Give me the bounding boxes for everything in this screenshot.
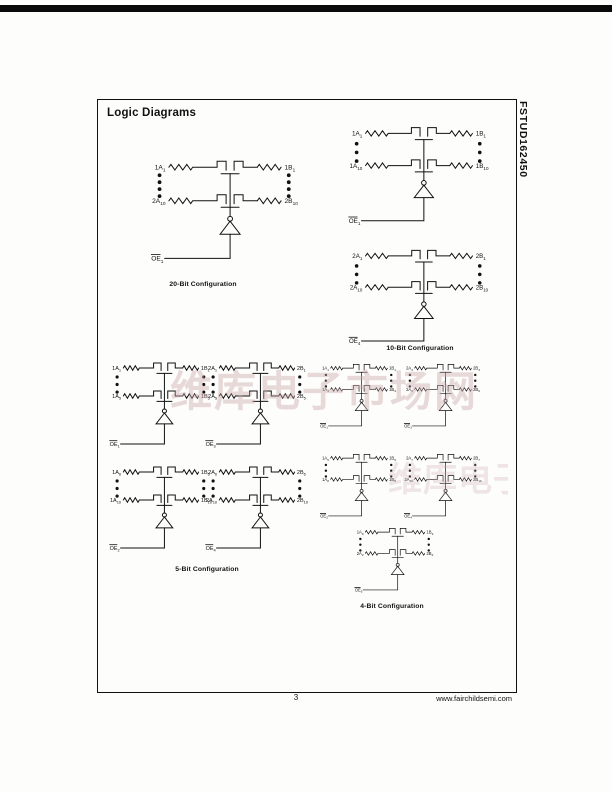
- pin-label: 2A10: [206, 498, 218, 505]
- resistor: [375, 478, 387, 482]
- pin-label: 2B1: [476, 253, 487, 261]
- pin-label: 1B10: [476, 163, 489, 171]
- logic-diagram-5bit-group4: 2A62B62A102B10OE4: [200, 456, 314, 556]
- pin-label: 2B3: [473, 366, 480, 372]
- pin-label: 1B8: [389, 477, 396, 483]
- resistor: [415, 364, 443, 370]
- oe-label: OE1: [151, 256, 164, 265]
- logic-diagram-10bit-group1: 1A11B11A101B10OE1: [338, 115, 500, 230]
- ellipsis-dot: [474, 380, 476, 382]
- circuit-lines: [158, 161, 291, 258]
- pin-label: 2A6: [208, 470, 218, 477]
- pin-label: 2B1: [297, 366, 306, 373]
- inverter-icon: [355, 402, 368, 410]
- bus-switch-cell: 1A11B11A101B10OE1: [338, 115, 500, 230]
- pin-label: 2A6: [406, 387, 413, 393]
- bus-switch-cell: 2A72B72A102B10OE4: [400, 446, 486, 522]
- ellipsis-dot: [478, 151, 482, 155]
- pin-label: 1A8: [322, 477, 329, 483]
- mosfet-terminal: [364, 454, 375, 460]
- inverter-icon: [355, 492, 368, 500]
- ellipsis-dot: [212, 383, 215, 386]
- pin-label: 1A1: [155, 165, 166, 174]
- pin-label: 1A5: [322, 456, 329, 462]
- pin-label: 1B1: [285, 165, 296, 174]
- ellipsis-dot: [325, 374, 327, 376]
- mosfet-terminal: [234, 161, 257, 170]
- ellipsis-dot: [298, 487, 301, 490]
- resistor: [219, 391, 257, 399]
- inverter-icon: [414, 185, 433, 197]
- oe-wire: [328, 411, 361, 426]
- mosfet-terminal: [364, 386, 375, 392]
- ellipsis-dot: [287, 180, 291, 184]
- ellipsis-dot: [298, 479, 301, 482]
- resistor: [183, 366, 199, 371]
- oe-wire: [121, 424, 165, 444]
- ellipsis-dot: [355, 273, 359, 277]
- ellipsis-dot: [298, 383, 301, 386]
- pin-label: 2B10: [297, 498, 309, 505]
- ellipsis-dot: [287, 173, 291, 177]
- ellipsis-dot: [116, 479, 119, 482]
- resistor: [331, 364, 359, 370]
- pin-label: 2A7: [406, 456, 413, 462]
- ellipsis-dot: [116, 487, 119, 490]
- logic-diagram-4bit-group5: 1A91B92A22B2OE5: [350, 520, 440, 596]
- circuit-lines: [409, 454, 477, 516]
- resistor: [331, 476, 359, 482]
- resistor: [331, 454, 359, 460]
- footer-website: www.fairchildsemi.com: [380, 694, 512, 703]
- inverter-icon: [391, 566, 404, 574]
- caption-20bit: 20-Bit Configuration: [128, 281, 278, 288]
- pin-label: 1B9: [427, 530, 434, 536]
- bus-switch-cell: 2A12B12A52B5OE3: [200, 352, 314, 452]
- pin-label: 1A5: [112, 394, 122, 401]
- pin-label: 2B5: [297, 394, 307, 401]
- pin-label: 2B10: [476, 284, 489, 292]
- logic-diagram-4bit-group1: 1A11B11A41B4OE1: [316, 356, 402, 432]
- ellipsis-dot: [428, 538, 430, 540]
- resistor: [450, 131, 473, 136]
- pin-label: 2B10: [285, 198, 299, 207]
- inverter-icon: [439, 492, 452, 500]
- resistor: [450, 285, 473, 290]
- ellipsis-dot: [298, 375, 301, 378]
- logic-diagram-4bit-group4: 2A72B72A102B10OE4: [400, 446, 486, 522]
- mosfet-terminal: [264, 363, 279, 371]
- ellipsis-dot: [474, 374, 476, 376]
- pin-label: 2A5: [208, 394, 218, 401]
- ellipsis-dot: [158, 173, 162, 177]
- mosfet-terminal: [264, 495, 279, 503]
- ellipsis-dot: [355, 264, 359, 268]
- resistor: [183, 498, 199, 503]
- logic-diagram-20bit: 1A11B12A102B10OE1: [140, 148, 310, 268]
- pin-label: 2A3: [406, 366, 413, 372]
- resistor: [219, 363, 257, 371]
- pin-label: 1B1: [389, 366, 396, 372]
- pin-label: 2B10: [473, 477, 482, 483]
- pin-label: 1B4: [389, 387, 396, 393]
- circuit-lines: [116, 467, 206, 548]
- mosfet-terminal: [364, 364, 375, 370]
- resistor: [450, 253, 473, 258]
- circuit-lines: [409, 364, 477, 426]
- pin-label: 2A10: [404, 477, 413, 483]
- ellipsis-dot: [474, 470, 476, 472]
- pin-label: 1A4: [322, 387, 329, 393]
- resistor: [415, 454, 443, 460]
- oe-label: OE1: [110, 442, 120, 449]
- resistor: [375, 366, 387, 370]
- ellipsis-dot: [478, 264, 482, 268]
- resistor: [459, 388, 471, 392]
- resistor: [257, 164, 281, 170]
- mosfet-terminal: [264, 391, 279, 399]
- pin-label: 2B6: [297, 470, 307, 477]
- pin-label: 2B2: [427, 551, 434, 557]
- resistor: [169, 161, 226, 170]
- resistor: [279, 470, 295, 475]
- resistor: [257, 198, 281, 204]
- logic-diagram-5bit-group3: 2A12B12A52B5OE3: [200, 352, 314, 452]
- inverter-icon: [156, 517, 173, 528]
- ellipsis-dot: [212, 487, 215, 490]
- bus-switch-cell: 1A11B11A41B4OE1: [316, 356, 402, 432]
- mosfet-terminal: [448, 476, 459, 482]
- mosfet-terminal: [448, 454, 459, 460]
- oe-wire: [361, 318, 423, 341]
- ellipsis-dot: [478, 142, 482, 146]
- mosfet-terminal: [168, 467, 183, 475]
- ellipsis-dot: [409, 464, 411, 466]
- pin-label: 1A10: [350, 163, 363, 171]
- mosfet-terminal: [234, 195, 257, 204]
- resistor: [279, 394, 295, 399]
- logic-diagram-10bit-group2: 2A12B12A102B10OE4: [338, 238, 500, 350]
- resistor: [123, 363, 161, 371]
- pin-label: 1A9: [357, 530, 364, 536]
- oe-wire: [412, 501, 445, 516]
- oe-label: OE4: [206, 546, 217, 553]
- circuit-lines: [212, 467, 302, 548]
- pin-label: 2A10: [350, 284, 363, 292]
- resistor: [183, 394, 199, 399]
- circuit-lines: [355, 250, 482, 341]
- oe-label: OE3: [206, 442, 217, 449]
- pin-label: 1B1: [476, 131, 487, 139]
- caption-10bit: 10-Bit Configuration: [345, 345, 495, 352]
- pin-label: 2B6: [473, 387, 480, 393]
- bus-switch-cell: 2A62B62A102B10OE4: [200, 456, 314, 556]
- pin-label: 2B7: [473, 456, 480, 462]
- bus-switch-cell: 1A11B12A102B10OE1: [140, 148, 310, 268]
- circuit-lines: [359, 528, 430, 590]
- resistor: [123, 495, 161, 503]
- ellipsis-dot: [390, 380, 392, 382]
- resistor: [375, 456, 387, 460]
- resistor: [415, 386, 443, 392]
- oe-label: OE2: [320, 513, 328, 519]
- logic-diagram-4bit-group3: 2A32B32A62B6OE3: [400, 356, 486, 432]
- mosfet-terminal: [168, 495, 183, 503]
- ellipsis-dot: [116, 375, 119, 378]
- ellipsis-dot: [359, 538, 361, 540]
- resistor: [331, 386, 359, 392]
- oe-label: OE3: [404, 423, 412, 429]
- oe-wire: [412, 411, 445, 426]
- resistor: [366, 128, 420, 137]
- circuit-lines: [212, 363, 302, 444]
- page-title: Logic Diagrams: [107, 107, 196, 119]
- pin-label: 1A1: [322, 366, 329, 372]
- resistor: [375, 388, 387, 392]
- part-number-vertical: FSTUD162450: [517, 101, 529, 178]
- ellipsis-dot: [355, 142, 359, 146]
- oe-wire: [361, 198, 423, 221]
- oe-wire: [217, 528, 261, 548]
- caption-5bit: 5-Bit Configuration: [132, 566, 282, 573]
- pin-label: 1A1: [352, 131, 363, 139]
- oe-wire: [121, 528, 165, 548]
- pin-label: 2A1: [208, 366, 217, 373]
- circuit-lines: [325, 364, 393, 426]
- inverter-icon: [439, 402, 452, 410]
- ellipsis-dot: [409, 374, 411, 376]
- inverter-icon: [252, 413, 269, 424]
- inverter-icon: [220, 221, 240, 234]
- circuit-lines: [116, 363, 206, 444]
- resistor: [366, 282, 421, 290]
- mosfet-terminal: [168, 391, 183, 399]
- resistor: [412, 530, 425, 534]
- pin-label: 1A6: [112, 470, 122, 477]
- mosfet-terminal: [264, 467, 279, 475]
- oe-label: OE2: [110, 546, 120, 553]
- pin-label: 1A10: [110, 498, 122, 505]
- ellipsis-dot: [409, 470, 411, 472]
- resistor: [123, 467, 161, 475]
- resistor: [219, 467, 257, 475]
- inverter-icon: [415, 306, 434, 318]
- ellipsis-dot: [409, 380, 411, 382]
- mosfet-terminal: [400, 550, 412, 556]
- ellipsis-dot: [212, 479, 215, 482]
- logic-diagram-4bit-group2: 1A51B51A81B8OE2: [316, 446, 402, 522]
- resistor: [169, 195, 226, 204]
- top-scan-bar: [0, 5, 612, 12]
- mosfet-terminal: [428, 128, 450, 137]
- ellipsis-dot: [390, 374, 392, 376]
- resistor: [183, 470, 199, 475]
- mosfet-terminal: [168, 363, 183, 371]
- mosfet-terminal: [400, 528, 412, 534]
- circuit-lines: [325, 454, 393, 516]
- resistor: [459, 478, 471, 482]
- mosfet-terminal: [428, 282, 450, 290]
- ellipsis-dot: [158, 180, 162, 184]
- ellipsis-dot: [158, 187, 162, 191]
- oe-label: OE5: [355, 587, 363, 593]
- bus-switch-cell: 2A12B12A102B10OE4: [338, 238, 500, 350]
- resistor: [459, 456, 471, 460]
- oe-label: OE1: [349, 218, 361, 226]
- ellipsis-dot: [478, 273, 482, 277]
- ellipsis-dot: [325, 464, 327, 466]
- resistor: [365, 528, 395, 534]
- circuit-lines: [355, 128, 482, 221]
- oe-wire: [165, 234, 230, 258]
- ellipsis-dot: [287, 187, 291, 191]
- bus-switch-cell: 1A51B51A81B8OE2: [316, 446, 402, 522]
- ellipsis-dot: [359, 544, 361, 546]
- pin-label: 1A1: [112, 366, 121, 373]
- ellipsis-dot: [390, 470, 392, 472]
- ellipsis-dot: [116, 383, 119, 386]
- inverter-icon: [156, 413, 173, 424]
- oe-label: OE1: [320, 423, 328, 429]
- mosfet-terminal: [428, 160, 450, 169]
- resistor: [279, 498, 295, 503]
- oe-wire: [217, 424, 261, 444]
- oe-label: OE4: [404, 513, 412, 519]
- ellipsis-dot: [212, 375, 215, 378]
- pin-label: 2A2: [357, 551, 364, 557]
- ellipsis-dot: [390, 464, 392, 466]
- ellipsis-dot: [355, 151, 359, 155]
- pin-label: 2A1: [352, 253, 363, 261]
- pin-label: 1B5: [389, 456, 396, 462]
- mosfet-terminal: [448, 386, 459, 392]
- resistor: [415, 476, 443, 482]
- oe-wire: [363, 575, 398, 590]
- resistor: [365, 550, 395, 556]
- pin-label: 2A10: [152, 198, 166, 207]
- ellipsis-dot: [428, 544, 430, 546]
- ellipsis-dot: [325, 380, 327, 382]
- resistor: [123, 391, 161, 399]
- datasheet-page: { "page": { "title": "Logic Diagrams", "…: [0, 0, 612, 792]
- mosfet-terminal: [428, 250, 450, 258]
- resistor: [412, 552, 425, 556]
- resistor: [450, 163, 473, 168]
- resistor: [366, 250, 421, 258]
- resistor: [366, 160, 420, 169]
- caption-4bit: 4-Bit Configuration: [317, 603, 467, 610]
- mosfet-terminal: [364, 476, 375, 482]
- resistor: [279, 366, 295, 371]
- ellipsis-dot: [325, 470, 327, 472]
- inverter-icon: [252, 517, 269, 528]
- resistor: [219, 495, 257, 503]
- bus-switch-cell: 2A32B32A62B6OE3: [400, 356, 486, 432]
- bus-switch-cell: 1A91B92A22B2OE5: [350, 520, 440, 596]
- resistor: [459, 366, 471, 370]
- mosfet-terminal: [448, 364, 459, 370]
- oe-wire: [328, 501, 361, 516]
- ellipsis-dot: [474, 464, 476, 466]
